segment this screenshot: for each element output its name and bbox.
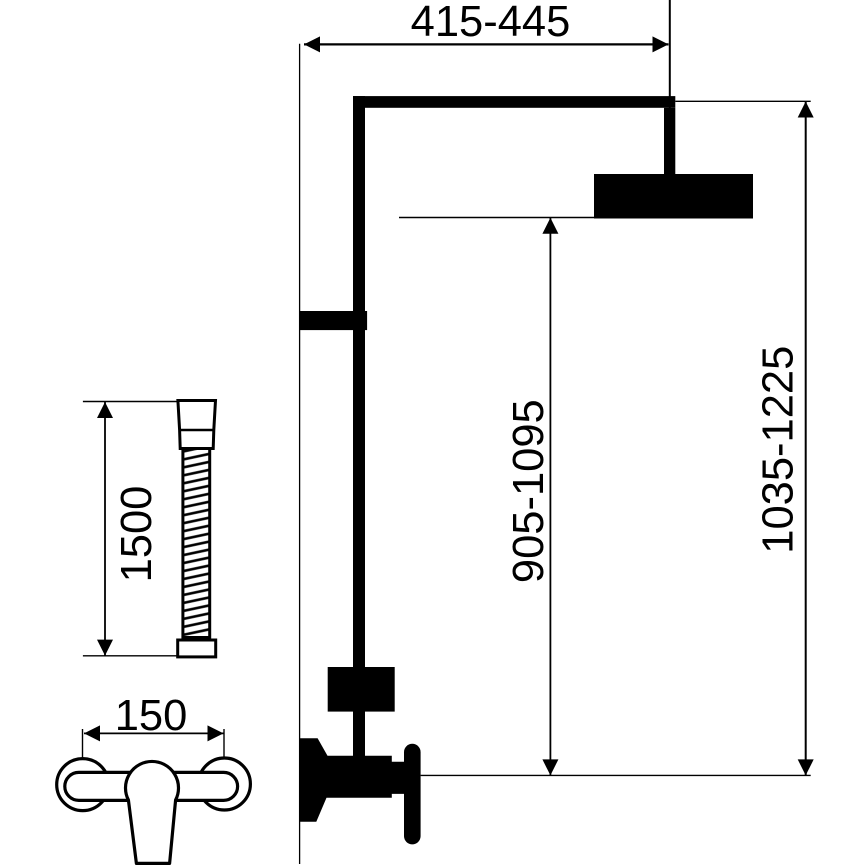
svg-text:415-445: 415-445 (411, 0, 571, 46)
svg-text:1500: 1500 (113, 486, 161, 583)
svg-text:905-1095: 905-1095 (505, 399, 553, 583)
svg-text:1035-1225: 1035-1225 (755, 346, 803, 554)
